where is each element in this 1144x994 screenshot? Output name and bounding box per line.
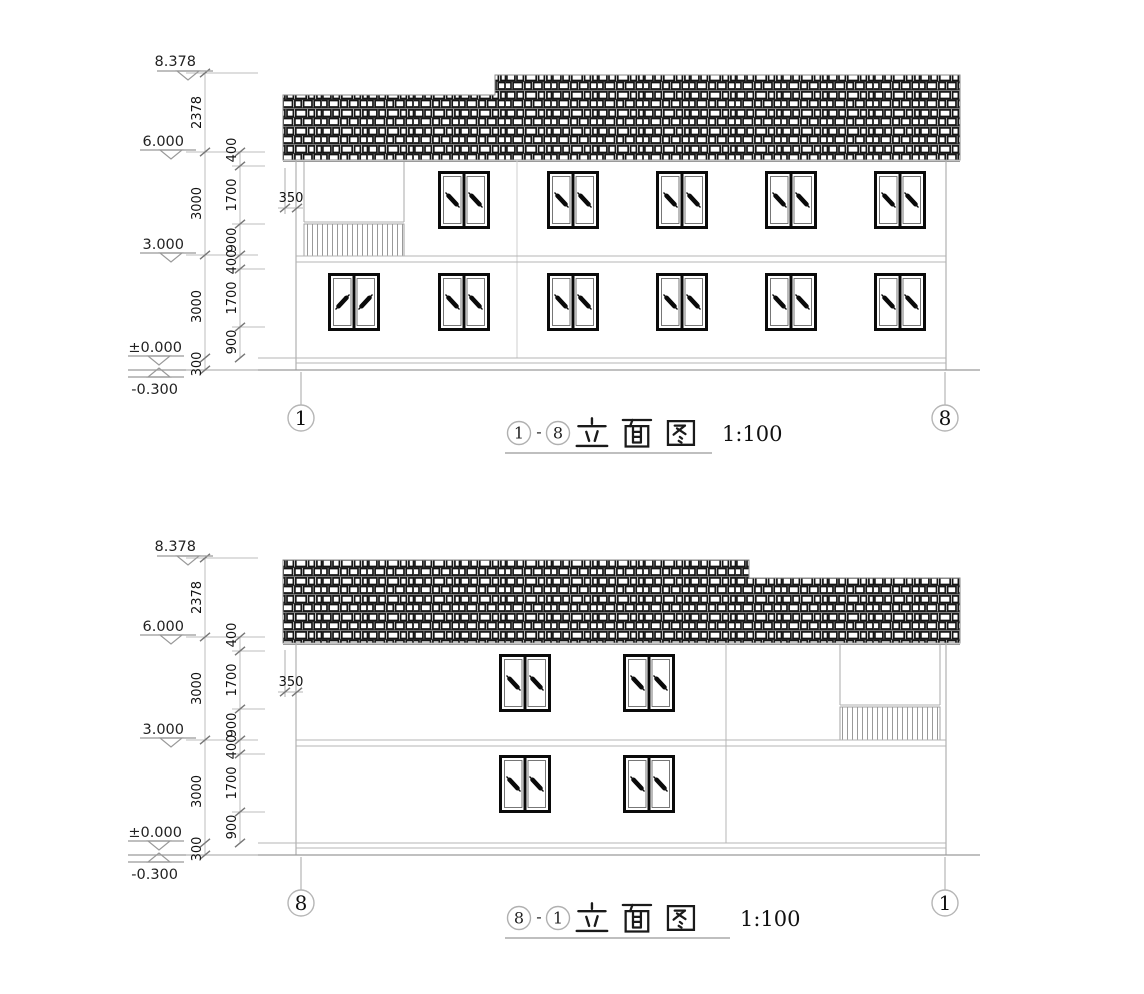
svg-text:1700: 1700 xyxy=(225,766,240,799)
svg-text:±0.000: ±0.000 xyxy=(128,825,182,841)
svg-text:400: 400 xyxy=(225,735,240,760)
svg-text:1: 1 xyxy=(553,909,563,928)
level-labels: 8.378 6.000 3.000 ±0.000 -0.300 xyxy=(128,539,196,883)
elevation-1-8: 350 2378 3000 3000 300 xyxy=(128,54,980,453)
svg-text:3000: 3000 xyxy=(190,672,205,705)
svg-text:3000: 3000 xyxy=(190,290,205,323)
overall-dim-texts: 2378 3000 3000 300 xyxy=(190,96,205,376)
svg-text:3.000: 3.000 xyxy=(142,237,184,253)
drawing-title: 8 - 1 1:100 xyxy=(505,903,801,938)
balcony-railing xyxy=(304,224,404,256)
svg-text:-: - xyxy=(536,422,541,441)
svg-text:±0.000: ±0.000 xyxy=(128,340,182,356)
window xyxy=(876,173,925,228)
dim-350: 350 xyxy=(279,675,304,690)
window xyxy=(876,275,925,330)
svg-text:1: 1 xyxy=(514,424,524,443)
eave-overhang-dim: 350 xyxy=(278,168,303,214)
svg-text:2378: 2378 xyxy=(190,581,205,614)
wall-outline xyxy=(296,160,946,370)
level-labels: 8.378 6.000 3.000 ±0.000 -0.300 xyxy=(128,54,196,398)
window xyxy=(625,757,674,812)
grid-bubble-right: 1 xyxy=(939,891,952,915)
windows-upper xyxy=(501,656,674,711)
svg-text:8: 8 xyxy=(553,424,563,443)
window xyxy=(330,275,379,330)
floor-lines xyxy=(258,740,946,848)
svg-text:3000: 3000 xyxy=(190,187,205,220)
svg-text:900: 900 xyxy=(225,815,240,840)
window xyxy=(501,656,550,711)
elevation-8-1: 350 2378 3000 3000 300 xyxy=(128,539,980,938)
floor-dim-texts: 400 1700 900 400 1700 900 xyxy=(225,138,240,355)
window xyxy=(440,173,489,228)
svg-text:3000: 3000 xyxy=(190,775,205,808)
grid-bubbles: 8 1 xyxy=(288,857,958,916)
balcony-railing xyxy=(840,707,940,740)
svg-text:1700: 1700 xyxy=(225,281,240,314)
svg-text:300: 300 xyxy=(190,837,205,862)
svg-text:300: 300 xyxy=(190,352,205,377)
dimension-block: 2378 3000 3000 300 400 1700 900 400 1700… xyxy=(186,554,265,862)
svg-text:8.378: 8.378 xyxy=(154,54,196,70)
windows-upper xyxy=(440,173,925,228)
svg-text:8: 8 xyxy=(514,909,524,928)
window xyxy=(549,173,598,228)
svg-text:900: 900 xyxy=(225,713,240,738)
eave-overhang-dim: 350 xyxy=(278,650,303,697)
window xyxy=(625,656,674,711)
balcony-right xyxy=(840,645,940,705)
svg-text:400: 400 xyxy=(225,138,240,163)
tiled-roof xyxy=(283,560,960,643)
svg-text:3.000: 3.000 xyxy=(142,722,184,738)
svg-text:8.378: 8.378 xyxy=(154,539,196,555)
svg-text:900: 900 xyxy=(225,228,240,253)
window xyxy=(501,757,550,812)
balcony-left xyxy=(304,162,404,222)
floor-dim-texts: 400 1700 900 400 1700 900 xyxy=(225,623,240,840)
windows-lower xyxy=(330,275,925,330)
svg-text:6.000: 6.000 xyxy=(142,619,184,635)
dim-ticks xyxy=(200,554,245,859)
window xyxy=(767,173,816,228)
title-scale: 1:100 xyxy=(722,422,783,446)
svg-text:400: 400 xyxy=(225,250,240,275)
svg-text:6.000: 6.000 xyxy=(142,134,184,150)
tiled-roof xyxy=(283,75,960,160)
svg-text:-0.300: -0.300 xyxy=(131,382,178,398)
grid-bubble-right: 8 xyxy=(939,406,952,430)
window xyxy=(549,275,598,330)
wall-outline xyxy=(296,643,946,855)
title-cjk-elevation-word xyxy=(577,418,694,446)
title-scale: 1:100 xyxy=(740,907,801,931)
elevation-drawing-canvas: 350 2378 3000 3000 300 xyxy=(0,0,1144,994)
grid-bubble-left: 8 xyxy=(295,891,308,915)
dimension-block: 2378 3000 3000 300 400 1700 900 400 1700… xyxy=(186,69,265,377)
svg-text:1700: 1700 xyxy=(225,663,240,696)
svg-text:900: 900 xyxy=(225,330,240,355)
grid-bubbles: 1 8 xyxy=(288,372,958,431)
dim-ticks xyxy=(200,69,245,374)
svg-text:1700: 1700 xyxy=(225,178,240,211)
grid-bubble-left: 1 xyxy=(295,406,308,430)
window xyxy=(440,275,489,330)
svg-text:400: 400 xyxy=(225,623,240,648)
svg-text:2378: 2378 xyxy=(190,96,205,129)
drawing-sheet: 立面图 立面图 xyxy=(0,0,1144,994)
window xyxy=(767,275,816,330)
windows-lower xyxy=(501,757,674,812)
title-cjk-elevation-word xyxy=(577,903,694,931)
window xyxy=(658,275,707,330)
svg-text:-0.300: -0.300 xyxy=(131,867,178,883)
overall-dim-texts: 2378 3000 3000 300 xyxy=(190,581,205,861)
drawing-title: 1 - 8 1:100 xyxy=(505,418,783,453)
window xyxy=(658,173,707,228)
dim-350: 350 xyxy=(279,191,304,206)
svg-text:-: - xyxy=(536,907,541,926)
